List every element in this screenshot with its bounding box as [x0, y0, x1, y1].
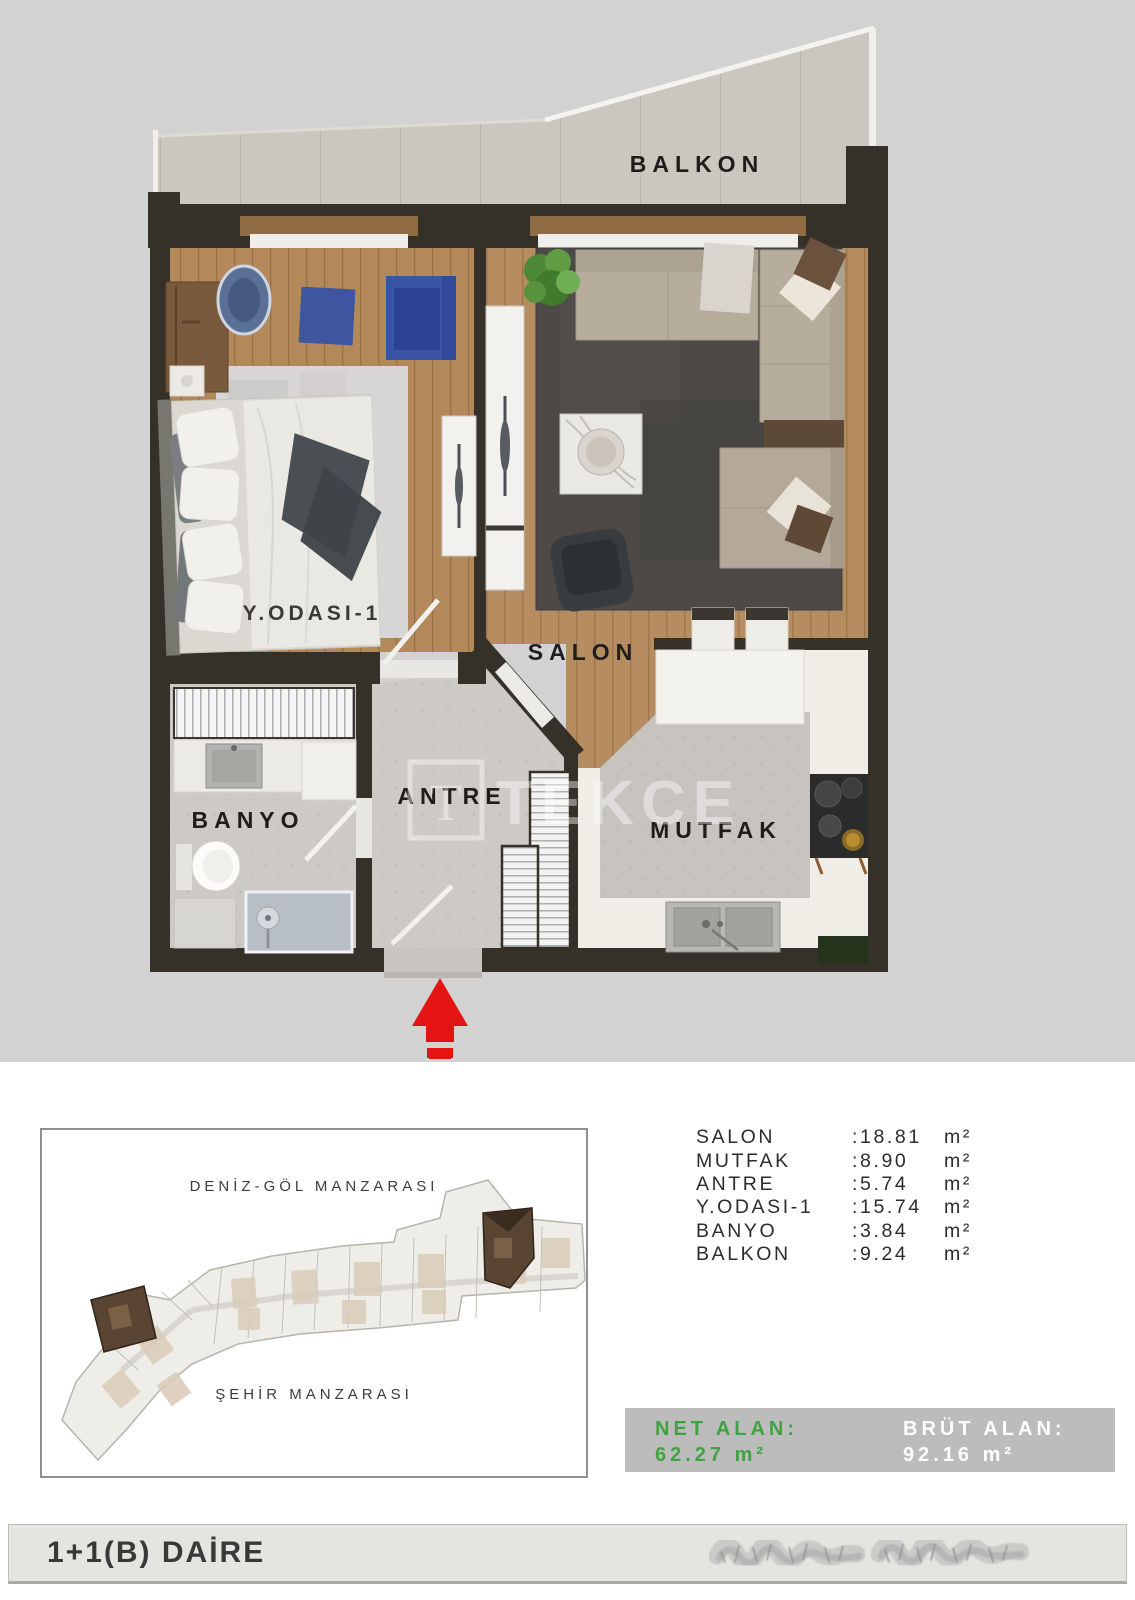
bathroom-door-threshold: [356, 798, 372, 858]
footer-bar: 1+1(B) DAİRE: [8, 1524, 1127, 1584]
row-label: MUTFAK: [696, 1150, 852, 1173]
salon-label: SALON: [528, 639, 639, 665]
watermark-text: TEKCE: [496, 769, 741, 838]
row-value: :3.84: [852, 1220, 944, 1243]
row-unit: m²: [944, 1126, 994, 1149]
row-label: BANYO: [696, 1220, 852, 1243]
row-label: Y.ODASI-1: [696, 1196, 852, 1219]
building-site-map: [42, 1130, 586, 1476]
row-unit: m²: [944, 1243, 994, 1266]
floor-plan: BALKON: [0, 0, 1135, 1062]
salon-furniture: [524, 237, 847, 614]
row-value: :9.24: [852, 1243, 944, 1266]
row-value: :5.74: [852, 1173, 944, 1196]
balcony-label: BALKON: [630, 151, 764, 177]
watermark-logo: T: [430, 775, 462, 832]
row-unit: m²: [944, 1150, 994, 1173]
room-areas-table: SALON :18.81 m² MUTFAK :8.90 m² ANTRE :5…: [696, 1126, 994, 1266]
entrance-opening: [384, 948, 482, 972]
row-label: ANTRE: [696, 1173, 852, 1196]
entrance-step: [384, 972, 482, 978]
unit-type-title: 1+1(B) DAİRE: [47, 1536, 265, 1570]
row-value: :8.90: [852, 1150, 944, 1173]
flyer-page: BALKON: [0, 0, 1135, 1600]
row-unit: m²: [944, 1196, 994, 1219]
table-row: BANYO :3.84 m²: [696, 1220, 994, 1243]
row-unit: m²: [944, 1220, 994, 1243]
table-row: SALON :18.81 m²: [696, 1126, 994, 1149]
bedroom-label: Y.ODASI-1: [243, 602, 382, 625]
bedroom-door-threshold: [380, 660, 458, 678]
area-summary-bar: NET ALAN: 62.27 m² BRÜT ALAN: 92.16 m²: [625, 1408, 1115, 1472]
row-value: :15.74: [852, 1196, 944, 1219]
table-row: ANTRE :5.74 m²: [696, 1173, 994, 1196]
bathroom-label: BANYO: [191, 807, 304, 833]
entrance-arrow-dash: [429, 1052, 451, 1059]
gross-area-block: BRÜT ALAN: 92.16 m²: [903, 1408, 1066, 1472]
table-row: BALKON :9.24 m²: [696, 1243, 994, 1266]
row-label: SALON: [696, 1126, 852, 1149]
row-value: :18.81: [852, 1126, 944, 1149]
table-row: MUTFAK :8.90 m²: [696, 1149, 994, 1172]
net-area-value: 62.27 m²: [655, 1442, 903, 1468]
gross-area-label: BRÜT ALAN:: [903, 1416, 1066, 1442]
net-area-block: NET ALAN: 62.27 m²: [625, 1408, 903, 1472]
row-label: BALKON: [696, 1243, 852, 1266]
table-row: Y.ODASI-1 :15.74 m²: [696, 1196, 994, 1219]
gross-area-value: 92.16 m²: [903, 1442, 1066, 1468]
row-unit: m²: [944, 1173, 994, 1196]
siteplan-box: DENİZ-GÖL MANZARASI ŞEHİR MANZARASI: [40, 1128, 588, 1478]
net-area-label: NET ALAN:: [655, 1416, 903, 1442]
obscured-logo-watermark: [709, 1528, 1029, 1582]
